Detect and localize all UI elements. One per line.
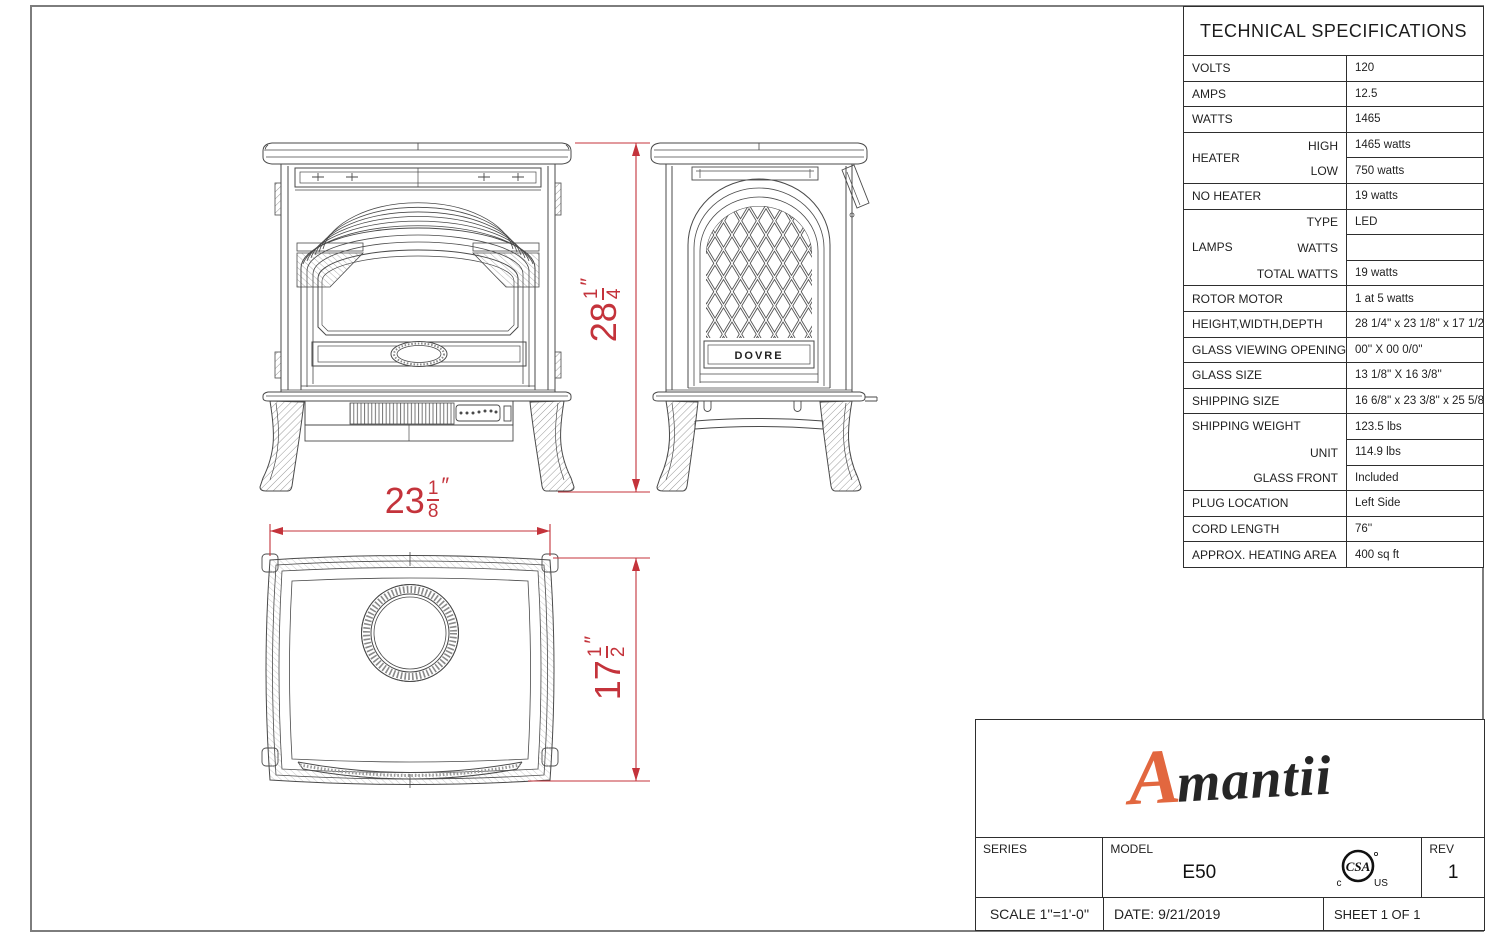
spec-value: 19 watts	[1346, 260, 1483, 286]
technical-specifications-table: TECHNICAL SPECIFICATIONS VOLTS 120 AMPS …	[1183, 6, 1484, 568]
dim-depth-fraction: 1 2	[586, 646, 628, 659]
spec-sublabel: LOW	[1311, 164, 1338, 178]
spec-label: WATTS	[1184, 106, 1346, 132]
spec-label: HEIGHT,WIDTH,DEPTH	[1184, 311, 1346, 337]
spec-value: 1465 watts	[1346, 132, 1483, 158]
spec-table-title: TECHNICAL SPECIFICATIONS	[1184, 7, 1483, 55]
sheet-cell: SHEET 1 OF 1	[1324, 898, 1484, 930]
rev-label: REV	[1429, 842, 1454, 856]
spec-value: 16 6/8'' x 23 3/8'' x 25 5/8''	[1346, 388, 1483, 414]
csa-cell: CSA c US	[1295, 838, 1422, 897]
spec-label: SHIPPING SIZE	[1184, 388, 1346, 414]
svg-text:c: c	[1337, 878, 1342, 889]
svg-text:US: US	[1374, 878, 1388, 889]
spec-group-heater: HEATER HIGH LOW	[1184, 132, 1346, 183]
spec-value: 114.9 lbs	[1346, 439, 1483, 465]
model-value: E50	[1103, 862, 1295, 884]
rev-cell: REV 1	[1422, 838, 1484, 897]
dim-height-fraction: 1 4	[582, 288, 624, 301]
scale-cell: SCALE 1''=1'-0''	[976, 898, 1104, 930]
spec-value: 1465	[1346, 106, 1483, 132]
model-cell: MODEL E50	[1103, 838, 1295, 897]
dim-width-unit: ″	[441, 475, 449, 497]
spec-sublabel: TYPE	[1307, 215, 1338, 229]
title-block-mid-row: SERIES MODEL E50 CSA c US REV 1	[976, 838, 1484, 898]
spec-value: Included	[1346, 465, 1483, 491]
title-block-bottom-row: SCALE 1''=1'-0'' DATE: 9/21/2019 SHEET 1…	[976, 898, 1484, 930]
dimension-depth-label: 17 1 2 ″	[578, 618, 638, 718]
spec-value: 400 sq ft	[1346, 541, 1483, 567]
spec-label: VOLTS	[1184, 55, 1346, 81]
spec-label: GLASS VIEWING OPENING	[1184, 337, 1346, 363]
spec-sublabel: UNIT	[1310, 446, 1338, 460]
csa-certification-icon: CSA c US	[1295, 838, 1421, 897]
spec-value: 120	[1346, 55, 1483, 81]
spec-value: 123.5 lbs	[1346, 413, 1483, 439]
spec-sublabel: TOTAL WATTS	[1257, 267, 1338, 281]
title-block: Amantii SERIES MODEL E50 CSA c US REV 1 …	[975, 719, 1485, 931]
spec-sublabel: HIGH	[1308, 139, 1338, 153]
spec-label: PLUG LOCATION	[1184, 490, 1346, 516]
dovre-plaque-text: DOVRE	[734, 350, 783, 362]
spec-value: 750 watts	[1346, 157, 1483, 183]
spec-value: 1 at 5 watts	[1346, 285, 1483, 311]
dim-height-unit: ″	[578, 278, 600, 286]
dim-width-whole: 23	[385, 483, 425, 519]
spec-value: 76''	[1346, 516, 1483, 542]
spec-group-label: LAMPS	[1192, 240, 1233, 254]
spec-table-grid: VOLTS 120 AMPS 12.5 WATTS 1465 HEATER HI…	[1184, 55, 1483, 567]
spec-group-lamps: LAMPS TYPE WATTS TOTAL WATTS	[1184, 209, 1346, 286]
logo-area: Amantii	[976, 720, 1484, 838]
spec-group-label: SHIPPING WEIGHT	[1192, 414, 1301, 440]
front-view	[260, 143, 574, 491]
spec-label: NO HEATER	[1184, 183, 1346, 209]
model-label: MODEL	[1110, 842, 1153, 856]
spec-value: 12.5	[1346, 81, 1483, 107]
spec-group-shipping-weight: SHIPPING WEIGHT UNIT GLASS FRONT	[1184, 413, 1346, 490]
rev-value: 1	[1422, 862, 1484, 884]
spec-value: 28 1/4'' x 23 1/8'' x 17 1/2''	[1346, 311, 1483, 337]
spec-value: 13 1/8'' X 16 3/8''	[1346, 362, 1483, 388]
logo-letter-a: A	[1126, 732, 1179, 821]
spec-value: LED	[1346, 209, 1483, 235]
spec-sublabel: GLASS FRONT	[1253, 471, 1338, 485]
date-cell: DATE: 9/21/2019	[1104, 898, 1324, 930]
amantii-logo: Amantii	[974, 715, 1486, 831]
spec-value: 00'' X 00 0/0''	[1346, 337, 1483, 363]
spec-value: Left Side	[1346, 490, 1483, 516]
spec-label: GLASS SIZE	[1184, 362, 1346, 388]
logo-text: mantii	[1175, 745, 1333, 815]
spec-label: CORD LENGTH	[1184, 516, 1346, 542]
spec-value: 19 watts	[1346, 183, 1483, 209]
dim-depth-unit: ″	[582, 636, 604, 644]
top-view	[262, 552, 558, 788]
spec-sublabel: WATTS	[1297, 241, 1338, 255]
dim-width-fraction: 1 8	[427, 479, 440, 521]
series-label: SERIES	[983, 842, 1027, 856]
spec-value	[1346, 234, 1483, 260]
side-view: DOVRE	[598, 143, 909, 491]
spec-group-label: HEATER	[1192, 151, 1240, 165]
dimension-width-label: 23 1 8 ″	[367, 471, 467, 531]
spec-label: ROTOR MOTOR	[1184, 285, 1346, 311]
series-cell: SERIES	[976, 838, 1103, 897]
spec-label: APPROX. HEATING AREA	[1184, 541, 1346, 567]
svg-text:CSA: CSA	[1346, 859, 1371, 874]
dimension-height-label: 28 1 4 ″	[574, 260, 634, 360]
spec-label: AMPS	[1184, 81, 1346, 107]
dim-height-whole: 28	[586, 302, 622, 342]
dim-depth-whole: 17	[590, 660, 626, 700]
